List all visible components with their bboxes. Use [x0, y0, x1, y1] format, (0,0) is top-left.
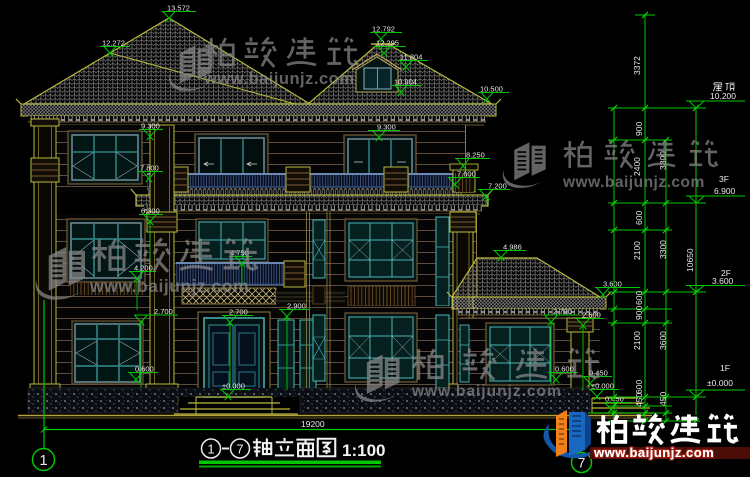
svg-text:1F: 1F: [720, 363, 730, 373]
svg-text:7.200: 7.200: [488, 182, 507, 191]
svg-text:www.baijunjz.com: www.baijunjz.com: [562, 174, 705, 191]
svg-text:3372: 3372: [632, 56, 642, 75]
svg-text:2.700: 2.700: [154, 307, 173, 316]
svg-text:3F: 3F: [719, 174, 729, 184]
svg-text:10650: 10650: [685, 248, 695, 272]
svg-text:600: 600: [634, 291, 644, 305]
svg-text:1: 1: [207, 442, 214, 457]
svg-text:0.600: 0.600: [555, 365, 574, 374]
svg-text:1:100: 1:100: [342, 441, 385, 460]
svg-text:450: 450: [658, 392, 668, 406]
svg-text:2F: 2F: [721, 268, 731, 278]
svg-text:±0.000: ±0.000: [707, 378, 733, 388]
svg-text:900: 900: [634, 122, 644, 136]
svg-text:3.600: 3.600: [603, 280, 622, 289]
svg-text:2.900: 2.900: [287, 302, 306, 311]
svg-text:www.baijunjz.com: www.baijunjz.com: [89, 276, 249, 296]
svg-text:4.986: 4.986: [503, 243, 522, 252]
svg-text:600: 600: [634, 211, 644, 225]
svg-text:10.904: 10.904: [394, 78, 417, 87]
svg-text:3300: 3300: [658, 151, 668, 170]
svg-text:2100: 2100: [632, 331, 642, 350]
svg-text:www.baijunjz.com: www.baijunjz.com: [411, 383, 562, 400]
svg-text:2.600: 2.600: [582, 311, 601, 320]
svg-text:2100: 2100: [632, 241, 642, 260]
svg-text:±0.000: ±0.000: [591, 382, 614, 391]
svg-text:2.700: 2.700: [553, 307, 572, 316]
svg-text:3600: 3600: [658, 331, 668, 350]
svg-text:12.272: 12.272: [102, 39, 125, 48]
svg-text:900: 900: [634, 306, 644, 320]
svg-text:0.600: 0.600: [135, 365, 154, 374]
svg-text:6.300: 6.300: [141, 207, 160, 216]
svg-text:9.300: 9.300: [141, 122, 160, 131]
svg-text:6.900: 6.900: [714, 186, 736, 196]
svg-text:19200: 19200: [301, 419, 325, 429]
svg-text:600: 600: [634, 380, 644, 394]
svg-text:7.600: 7.600: [457, 170, 476, 179]
svg-text:8.250: 8.250: [466, 151, 485, 160]
svg-text:www.baijunjz.com: www.baijunjz.com: [593, 445, 714, 460]
svg-text:3300: 3300: [658, 240, 668, 259]
svg-text:10.500: 10.500: [480, 85, 503, 94]
svg-text:13.572: 13.572: [167, 4, 190, 13]
svg-text:±0.000: ±0.000: [222, 382, 245, 391]
svg-text:7: 7: [236, 442, 243, 457]
svg-text:450: 450: [634, 393, 644, 407]
svg-text:4.200: 4.200: [134, 264, 153, 273]
svg-text:www.baijunjz.com: www.baijunjz.com: [203, 70, 354, 88]
svg-text:1: 1: [39, 452, 47, 469]
svg-text:7.800: 7.800: [140, 164, 159, 173]
svg-text:2.700: 2.700: [229, 308, 248, 317]
svg-text:12.792: 12.792: [372, 25, 395, 34]
svg-text:11.804: 11.804: [400, 53, 422, 62]
svg-text:9.300: 9.300: [377, 123, 396, 132]
svg-text:10.200: 10.200: [710, 91, 736, 101]
svg-text:12.295: 12.295: [376, 39, 399, 48]
